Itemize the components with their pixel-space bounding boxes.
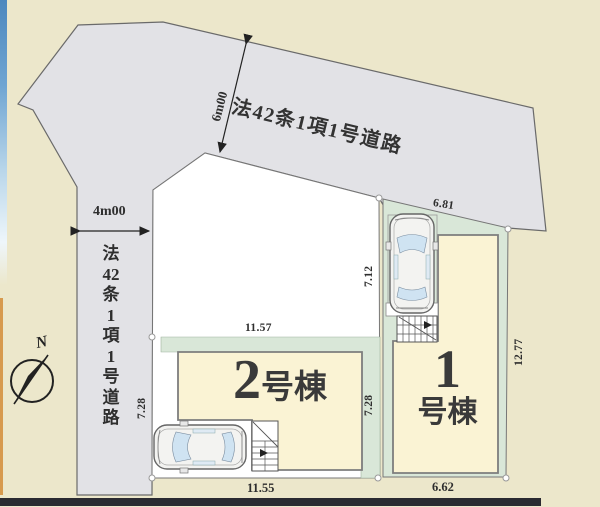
road-label-char: 路: [103, 408, 120, 429]
dim-lot2-bottom: 11.55: [247, 481, 274, 496]
road-label-char: 項: [103, 326, 120, 347]
dim-lot1-right: 12.77: [513, 339, 525, 366]
lot2-suffix: 号棟: [261, 370, 327, 406]
site-plan: 法42条1項1号道路 法 42 条 1 項 1 号 道 路 6m00 4m00 …: [0, 0, 600, 507]
dim-lot1-upper-left: 7.12: [363, 266, 375, 287]
stairs-icon: [252, 421, 278, 471]
lot2-number: 2: [233, 349, 261, 411]
road-label-char: 法: [103, 244, 120, 265]
dim-lot1-lower-left: 7.28: [363, 395, 375, 416]
road-label-char: 道: [103, 388, 120, 409]
car-icon: [154, 421, 246, 473]
site-plan-drawing: [0, 0, 600, 507]
dim-road-4m00: 4m00: [93, 204, 126, 220]
road-label-char: 号: [103, 367, 120, 388]
bottom-bar: [0, 498, 541, 506]
dim-lot2-top: 11.57: [245, 322, 272, 334]
lot1-building-label: 1 号棟: [400, 342, 495, 428]
lot1-number: 1: [400, 342, 495, 396]
road-label-char: 1: [107, 306, 116, 327]
road-label-vertical: 法 42 条 1 項 1 号 道 路: [97, 244, 125, 429]
dim-lot1-bottom: 6.62: [432, 480, 454, 495]
lot2-building-label: 2号棟: [200, 352, 360, 408]
car-icon: [386, 214, 438, 313]
compass-north-icon: [11, 355, 53, 404]
road-label-char: 1: [107, 347, 116, 368]
lot1-suffix: 号棟: [400, 398, 495, 428]
road-label-char: 42: [103, 265, 120, 286]
road-label-char: 条: [103, 285, 120, 306]
dim-lot2-left: 7.28: [136, 398, 148, 419]
